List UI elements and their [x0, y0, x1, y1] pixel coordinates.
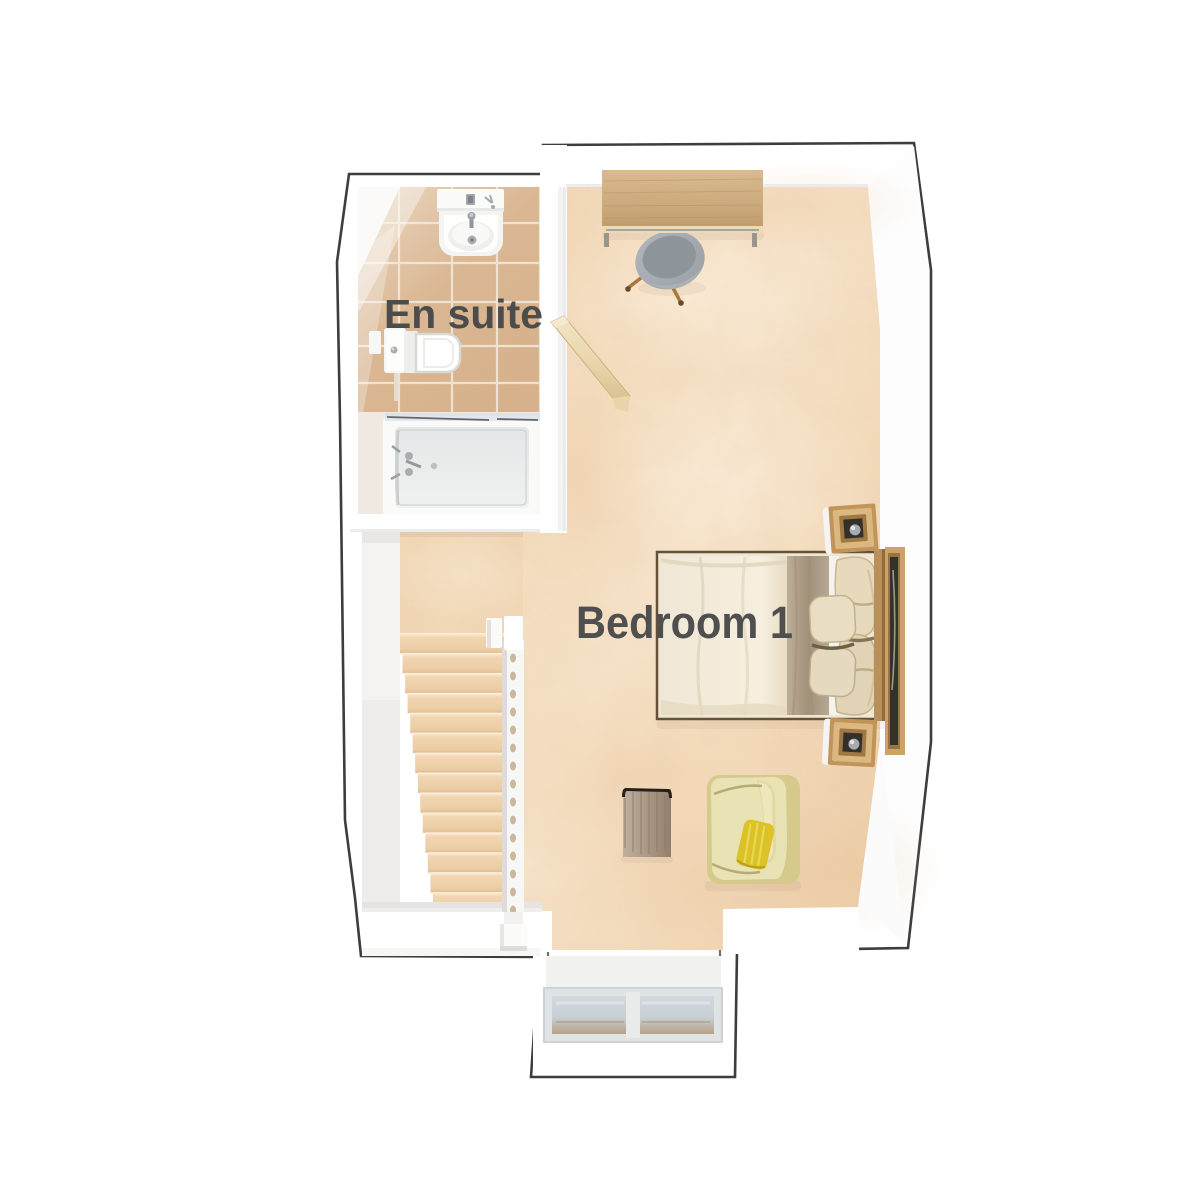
svg-text:Bedroom 1: Bedroom 1 [576, 597, 793, 648]
svg-text:En suite: En suite [384, 291, 543, 337]
